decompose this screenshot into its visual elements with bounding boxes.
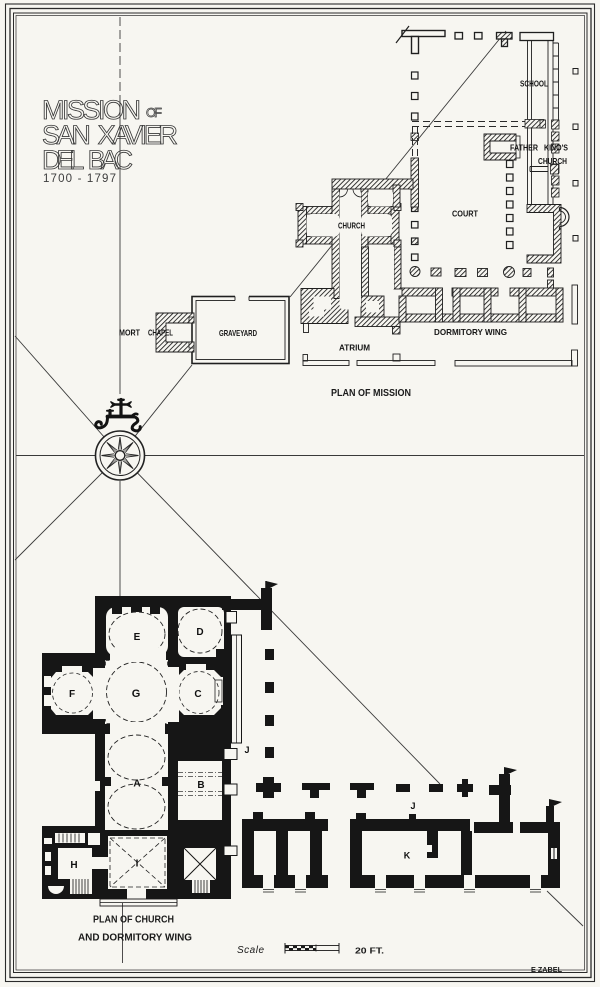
svg-text:KINO'S: KINO'S (544, 143, 568, 153)
svg-text:AND DORMITORY WING: AND DORMITORY WING (78, 933, 192, 944)
svg-text:FATHER: FATHER (510, 143, 538, 153)
svg-text:B: B (197, 780, 204, 791)
svg-text:OF: OF (146, 105, 162, 120)
svg-text:GRAVEYARD: GRAVEYARD (219, 328, 257, 338)
svg-text:COURT: COURT (452, 209, 478, 219)
svg-text:20 FT.: 20 FT. (355, 947, 384, 956)
svg-text:CHURCH: CHURCH (338, 221, 365, 231)
svg-text:E: E (134, 632, 141, 643)
svg-text:CHAPEL: CHAPEL (148, 328, 173, 338)
svg-text:I: I (136, 859, 139, 870)
svg-text:DEL BAC: DEL BAC (42, 145, 133, 175)
svg-text:J: J (244, 745, 249, 755)
svg-text:A: A (133, 779, 140, 790)
svg-text:J: J (410, 801, 415, 811)
svg-text:SCHOOL: SCHOOL (520, 79, 548, 89)
svg-text:G: G (132, 688, 141, 700)
svg-text:1700 - 1797: 1700 - 1797 (43, 173, 117, 185)
svg-text:D: D (196, 627, 203, 638)
svg-text:H: H (70, 860, 77, 871)
svg-text:PLAN OF CHURCH: PLAN OF CHURCH (93, 915, 174, 926)
svg-text:K: K (404, 851, 411, 861)
svg-text:PLAN OF MISSION: PLAN OF MISSION (331, 387, 411, 399)
svg-text:E ZABEL: E ZABEL (531, 965, 562, 974)
svg-text:DORMITORY WING: DORMITORY WING (434, 327, 507, 337)
svg-text:Scale: Scale (237, 945, 265, 956)
svg-text:C: C (194, 689, 201, 700)
svg-text:F: F (69, 689, 75, 700)
svg-text:ATRIUM: ATRIUM (339, 343, 370, 353)
svg-text:MORT: MORT (119, 328, 140, 338)
